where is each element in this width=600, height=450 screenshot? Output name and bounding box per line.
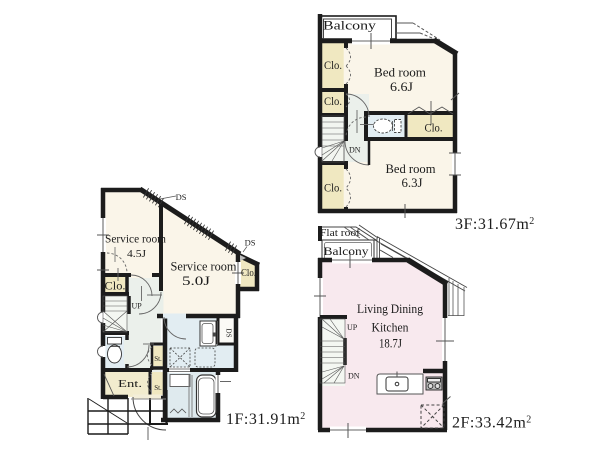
svg-text:1F:31.91m2: 1F:31.91m2 [226, 411, 306, 428]
svg-text:Bed room: Bed room [386, 161, 436, 176]
svg-text:DN: DN [349, 146, 361, 155]
svg-text:Balcony: Balcony [324, 244, 369, 258]
svg-text:St.: St. [154, 384, 162, 392]
svg-text:18.7J: 18.7J [379, 337, 402, 351]
svg-text:4.5J: 4.5J [127, 248, 147, 260]
svg-text:Living Dining: Living Dining [357, 302, 424, 316]
svg-text:Clo.: Clo. [425, 123, 443, 135]
svg-text:Service room: Service room [105, 234, 166, 246]
svg-text:DN: DN [348, 372, 360, 381]
svg-text:6.6J: 6.6J [390, 79, 413, 94]
svg-text:Ent.: Ent. [118, 378, 142, 390]
svg-text:5.0J: 5.0J [182, 274, 210, 288]
svg-text:Clo.: Clo. [241, 268, 256, 279]
svg-text:Clo.: Clo. [324, 183, 342, 195]
svg-text:6.3J: 6.3J [402, 175, 423, 190]
svg-text:UP: UP [347, 323, 358, 332]
svg-text:3F:31.67m2: 3F:31.67m2 [455, 216, 535, 233]
svg-text:Clo.: Clo. [324, 96, 342, 108]
svg-text:2F:33.42m2: 2F:33.42m2 [452, 415, 532, 432]
svg-text:DS: DS [225, 329, 233, 338]
svg-text:Kitchen: Kitchen [372, 321, 410, 335]
svg-text:Service room: Service room [171, 260, 237, 274]
svg-text:Clo.: Clo. [324, 60, 342, 72]
svg-text:DS: DS [245, 238, 256, 248]
svg-text:DS: DS [176, 192, 187, 202]
svg-text:Flat roof: Flat roof [320, 228, 361, 239]
svg-text:Balcony: Balcony [323, 19, 377, 33]
svg-text:Clo.: Clo. [105, 279, 126, 293]
svg-text:UP: UP [132, 302, 143, 311]
svg-text:Bed room: Bed room [374, 65, 426, 80]
svg-text:St.: St. [154, 355, 162, 363]
